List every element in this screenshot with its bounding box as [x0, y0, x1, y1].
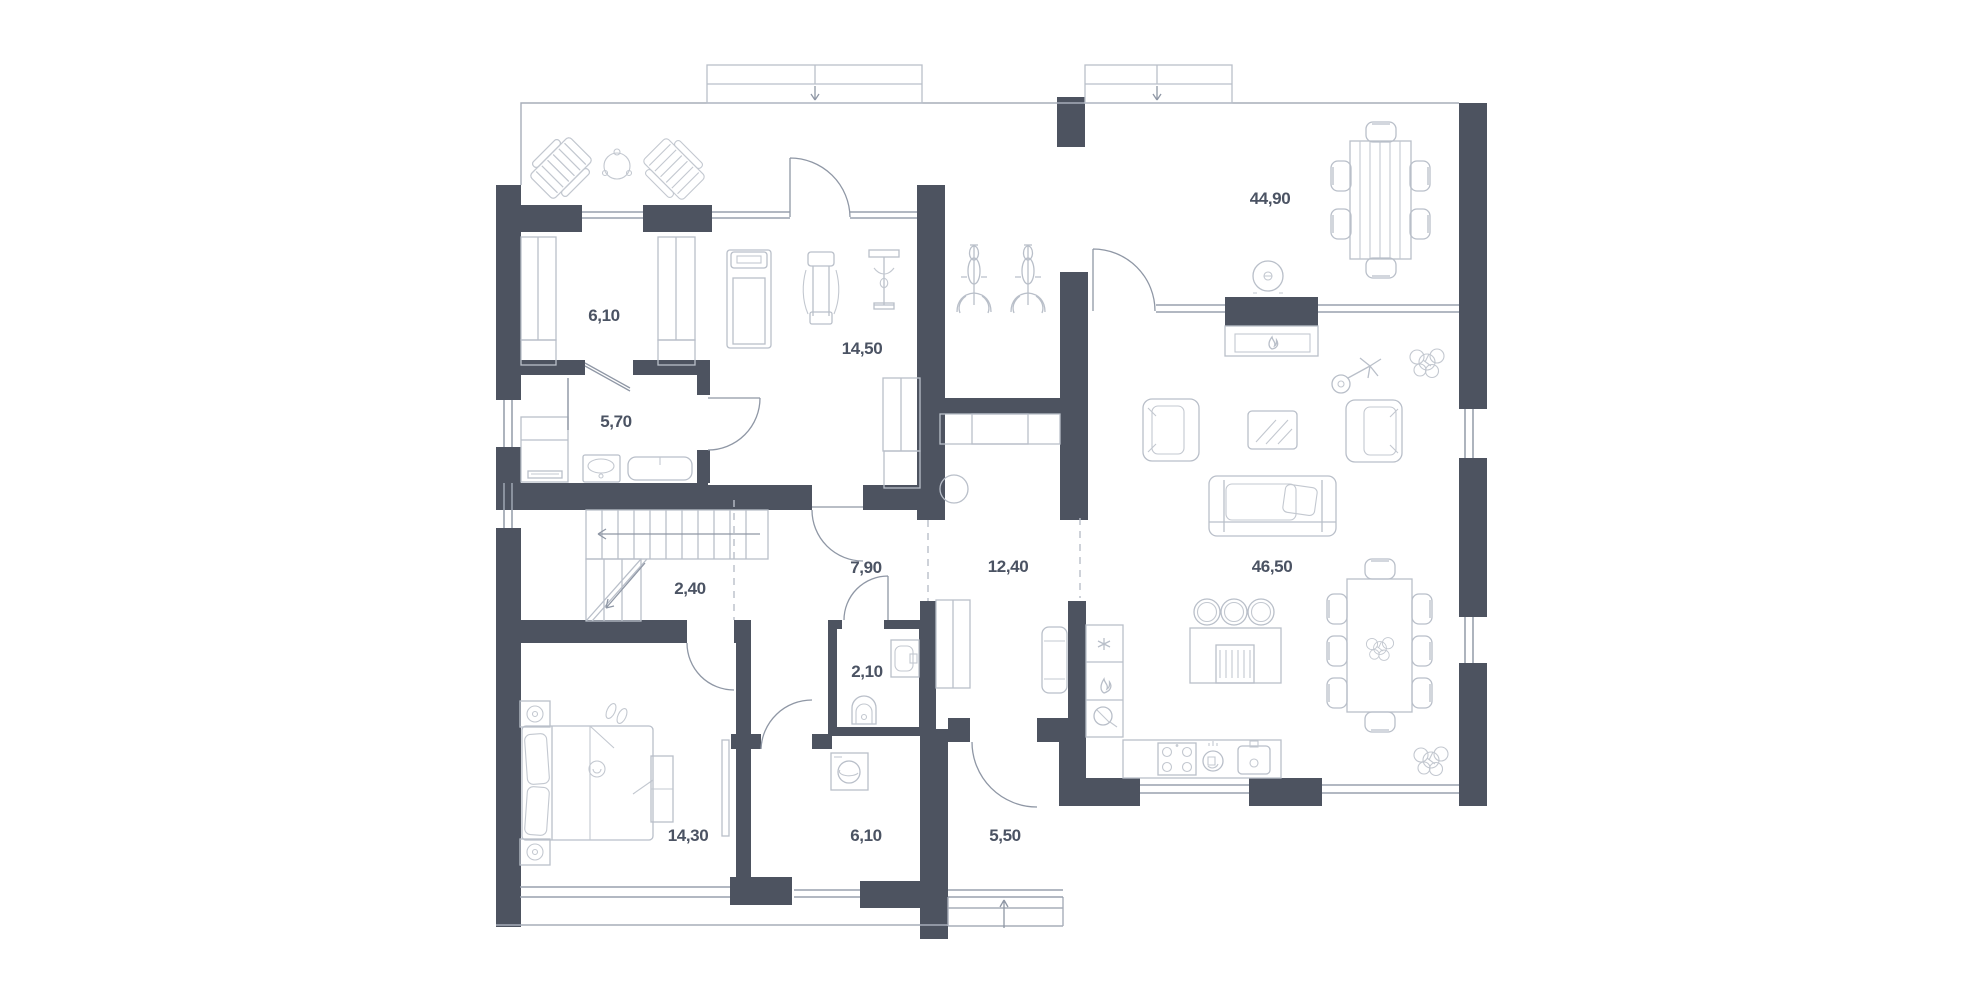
bench-icon [1042, 627, 1067, 693]
hob-icon [1158, 743, 1196, 775]
sofa-icon [1209, 476, 1336, 536]
room-area-gym: 14,50 [842, 339, 883, 359]
entrance-arrow [1000, 900, 1008, 928]
floor-lamp-icon [1332, 358, 1381, 393]
kitchen-counter-icon [1086, 625, 1123, 737]
room-area-corridor: 12,40 [988, 557, 1029, 577]
door-arc-wc [844, 576, 888, 620]
toilet-icon [852, 696, 876, 724]
fridge-icon [1098, 638, 1110, 650]
kitchen-furniture [1086, 559, 1448, 778]
fireplace-firebox [1225, 326, 1318, 356]
door-diagonal-closet [585, 363, 630, 391]
pendant-lamp-icon [1253, 261, 1283, 293]
room-area-living-dining: 44,90 [1250, 189, 1291, 209]
armchair-icon [1346, 400, 1402, 462]
wardrobe-icon [940, 414, 1060, 444]
chimney [707, 65, 1232, 103]
door-arc-living [1093, 249, 1155, 311]
door-arc-bathroom [708, 398, 760, 450]
dining-table-icon [1331, 122, 1430, 278]
bathtub-icon [628, 457, 692, 480]
chimney-arrow-down [811, 86, 819, 100]
corridor-furniture [936, 414, 1067, 693]
armchair-icon [1143, 399, 1199, 461]
door-arc-laundry [761, 700, 812, 749]
treadmill-icon [727, 250, 771, 348]
staircase [586, 510, 768, 621]
door-arc-gym-hall [812, 507, 863, 561]
door-arc-bedroom [687, 643, 734, 690]
door-arc-gym-terrace [790, 158, 850, 217]
nightstand-icon [520, 701, 550, 727]
floor-plan-canvas: 6,10 5,70 14,50 2,40 7,90 12,40 44,90 46… [0, 0, 1980, 990]
closet-furniture [521, 237, 695, 365]
room-area-closet: 6,10 [588, 306, 620, 326]
fireplace-icon [1225, 297, 1318, 326]
island-icon [1190, 628, 1281, 683]
lat-machine-icon [869, 250, 899, 309]
bed-icon [522, 726, 653, 840]
walls [496, 97, 1487, 939]
terrace-table-icon [603, 149, 632, 179]
chimney-arrow-down [1153, 86, 1161, 100]
door-arc-entrance [972, 742, 1037, 807]
room-area-hall: 7,90 [850, 558, 882, 578]
room-area-stair-hall: 2,40 [674, 579, 706, 599]
room-area-wc: 2,10 [851, 662, 883, 682]
room-area-bathroom: 5,70 [600, 412, 632, 432]
sink-icon [1238, 741, 1270, 774]
wc-fixtures [852, 640, 919, 724]
tv-icon [722, 740, 729, 836]
dining-table-icon [1327, 559, 1432, 732]
hob-flame-icon [1101, 679, 1111, 693]
washing-machine-icon [831, 753, 868, 790]
room-area-kitchen-living: 46,50 [1252, 557, 1293, 577]
gym-equipment [727, 250, 920, 488]
coffee-table-icon [1248, 411, 1297, 449]
dishwasher-icon [1203, 741, 1223, 771]
room-area-bedroom: 14,30 [668, 826, 709, 846]
terrace [524, 131, 711, 206]
living-dining-furniture [1143, 122, 1444, 536]
slippers-icon [604, 702, 629, 725]
stair-direction-arrow [598, 529, 760, 539]
room-area-entry: 5,50 [989, 826, 1021, 846]
weight-station-icon [803, 252, 839, 324]
flame-icon [1269, 337, 1278, 349]
washbasin-icon [583, 455, 620, 482]
washbasin-icon [891, 640, 919, 677]
room-area-laundry: 6,10 [850, 826, 882, 846]
nightstand-icon [520, 839, 550, 865]
